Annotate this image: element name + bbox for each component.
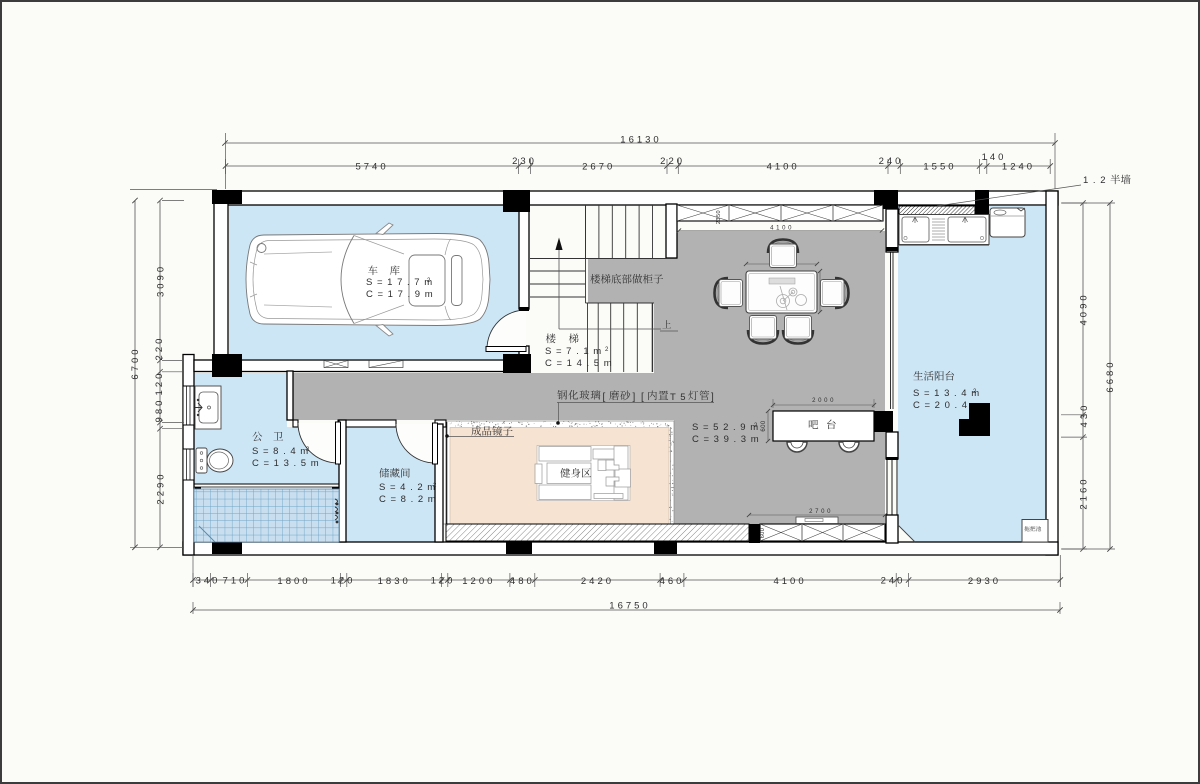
- svg-text:16130: 16130: [620, 135, 661, 146]
- svg-text:S = 7 . 1 m: S = 7 . 1 m: [545, 346, 602, 357]
- svg-text:]: ]: [711, 392, 714, 403]
- svg-text:430: 430: [1079, 403, 1090, 428]
- svg-text:480: 480: [510, 576, 535, 587]
- svg-text:2 0 0 0: 2 0 0 0: [812, 398, 834, 404]
- svg-text:2 7 0 0: 2 7 0 0: [809, 509, 831, 515]
- svg-text:1800: 1800: [277, 576, 310, 587]
- svg-text:S = 5 2 . 9 m: S = 5 2 . 9 m: [692, 422, 759, 433]
- svg-text:240: 240: [881, 576, 906, 587]
- svg-text:C = 8 . 2 m: C = 8 . 2 m: [379, 494, 437, 505]
- svg-text:710: 710: [223, 576, 248, 587]
- svg-text:S = 1 7 . 7 m: S = 1 7 . 7 m: [366, 277, 433, 288]
- svg-text:340: 340: [196, 576, 221, 587]
- svg-text:1240: 1240: [1002, 162, 1035, 173]
- svg-text:C = 1 7 . 9 m: C = 1 7 . 9 m: [366, 289, 434, 300]
- svg-text:120: 120: [331, 576, 356, 587]
- svg-text:220: 220: [660, 156, 685, 167]
- svg-text:S = 4 . 2 m: S = 4 . 2 m: [379, 482, 436, 493]
- svg-text:2350: 2350: [716, 210, 722, 224]
- svg-text:1200: 1200: [462, 576, 495, 587]
- svg-text:120: 120: [431, 576, 456, 587]
- svg-text:2670: 2670: [582, 162, 615, 173]
- svg-text:1550: 1550: [923, 162, 956, 173]
- svg-text:240: 240: [879, 156, 904, 167]
- svg-text:[: [: [603, 392, 606, 403]
- svg-text:120: 120: [154, 371, 165, 396]
- svg-text:C = 1 3 . 5 m: C = 1 3 . 5 m: [252, 458, 320, 469]
- svg-text:460: 460: [660, 576, 685, 587]
- svg-text:2: 2: [605, 347, 609, 353]
- svg-text:5740: 5740: [355, 162, 388, 173]
- svg-text:4100: 4100: [773, 576, 806, 587]
- svg-text:600: 600: [760, 528, 766, 538]
- svg-text:2930: 2930: [968, 576, 1001, 587]
- svg-text:C = 1 4 . 5 m: C = 1 4 . 5 m: [545, 358, 613, 369]
- svg-text:2420: 2420: [581, 576, 614, 587]
- svg-text:980: 980: [154, 398, 165, 423]
- svg-text:4 1 0 0: 4 1 0 0: [770, 226, 792, 232]
- svg-text:C = 3 9 . 3 m: C = 3 9 . 3 m: [692, 434, 760, 445]
- svg-text:3090: 3090: [156, 264, 167, 297]
- svg-text:2290: 2290: [156, 471, 167, 504]
- svg-text:140: 140: [982, 152, 1007, 163]
- svg-text:4090: 4090: [1079, 292, 1090, 325]
- svg-text:4100: 4100: [767, 162, 800, 173]
- svg-text:1 . 2: 1 . 2: [1083, 175, 1107, 186]
- svg-text:230: 230: [512, 156, 537, 167]
- svg-text:1830: 1830: [378, 576, 411, 587]
- svg-text:2160: 2160: [1079, 476, 1090, 509]
- svg-text:S = 8 . 4 m: S = 8 . 4 m: [252, 446, 309, 457]
- svg-text:S = 1 3 . 4 m: S = 1 3 . 4 m: [913, 388, 980, 399]
- svg-text:600: 600: [761, 420, 767, 431]
- svg-text:] [: ] [: [633, 392, 646, 403]
- svg-text:6680: 6680: [1105, 359, 1116, 392]
- svg-text:6700: 6700: [130, 346, 141, 379]
- svg-text:T 5: T 5: [670, 392, 687, 403]
- svg-text:16750: 16750: [609, 601, 650, 612]
- svg-text:220: 220: [154, 336, 165, 361]
